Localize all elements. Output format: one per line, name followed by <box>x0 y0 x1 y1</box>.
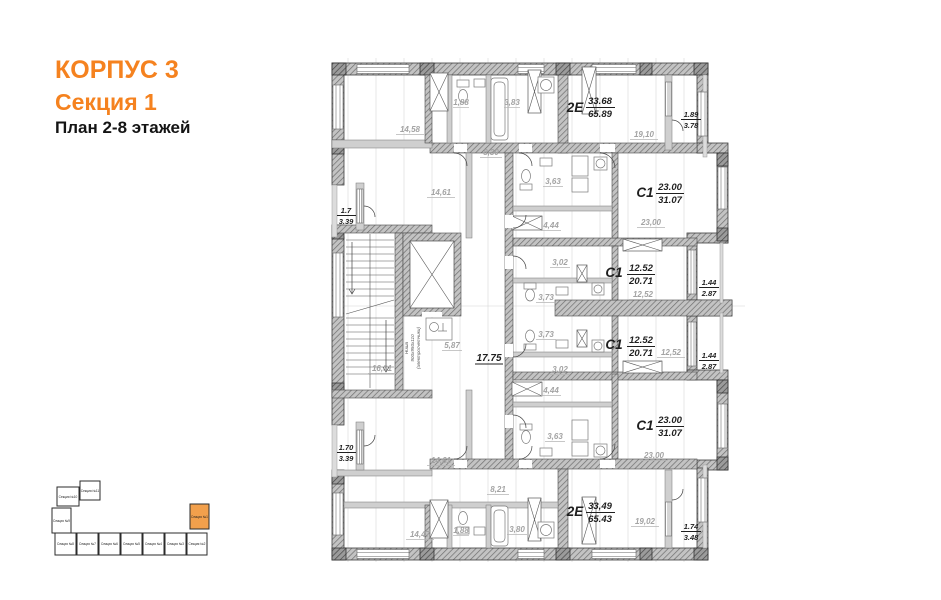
area-top-bath: 3,83 <box>504 98 520 107</box>
balcony-label-right-mid-upper: 1.442.87 <box>699 278 719 298</box>
window <box>518 550 544 559</box>
svg-text:Секция №4: Секция №4 <box>145 542 162 546</box>
niche-line2: 900х950х110 <box>410 334 415 362</box>
balcony-label-left-upper: 1.73.39 <box>337 206 356 226</box>
svg-text:2Е: 2Е <box>566 504 585 519</box>
sink-icon <box>540 158 552 166</box>
window <box>698 92 707 136</box>
svg-text:31.07: 31.07 <box>658 195 682 206</box>
washer-icon <box>594 157 607 170</box>
svg-text:Секция №2: Секция №2 <box>189 542 206 546</box>
area-mid-hall-upper: 3,02 <box>552 258 568 267</box>
window <box>698 478 707 522</box>
window <box>333 253 343 317</box>
window <box>357 550 409 559</box>
niche-line3: (электросчетчики) <box>416 327 421 369</box>
sink-icon <box>540 448 552 456</box>
svg-text:33,49: 33,49 <box>588 501 612 512</box>
area-c1-bottom-room: 23,00 <box>643 451 665 460</box>
svg-text:Секция №1: Секция №1 <box>191 515 208 519</box>
svg-text:2Е: 2Е <box>566 100 585 115</box>
bathtub-icon <box>491 78 508 140</box>
building-title: КОРПУС 3 <box>55 56 179 84</box>
svg-text:Секция №6: Секция №6 <box>101 542 118 546</box>
window <box>718 167 727 209</box>
svg-text:2.87: 2.87 <box>701 362 717 371</box>
svg-text:1.44: 1.44 <box>702 278 717 287</box>
svg-text:20.71: 20.71 <box>628 276 653 287</box>
svg-text:3.39: 3.39 <box>339 217 354 226</box>
area-top-left-room: 14,58 <box>400 125 421 134</box>
svg-text:Секция №8: Секция №8 <box>57 542 74 546</box>
shaft-x <box>623 239 662 251</box>
bathtub-icon <box>491 506 508 546</box>
washer-icon <box>594 444 607 457</box>
area-bottom-left-room: 14,47 <box>410 530 431 539</box>
svg-text:20.71: 20.71 <box>628 348 653 359</box>
apartment-label-c1-top: С1 23.00 31.07 <box>636 182 684 206</box>
sink-icon <box>474 527 485 535</box>
area-top-hall: 8,30 <box>483 148 499 157</box>
svg-text:1.7: 1.7 <box>341 206 352 215</box>
shaft-x <box>430 73 448 111</box>
area-mid-bath-lower: 3,73 <box>538 330 554 339</box>
window <box>357 189 363 223</box>
area-c1-top-kitchen: 3,63 <box>545 177 561 186</box>
niche-line1: Ниша <box>404 341 409 354</box>
area-left-room-lower: 14,61 <box>431 456 452 465</box>
apartment-label-c1-bottom: С1 23.00 31.07 <box>636 415 684 439</box>
shaft-x <box>577 330 587 347</box>
washer-icon <box>592 340 604 352</box>
shaft-x <box>623 361 662 373</box>
elevator-car-icon <box>426 318 452 340</box>
area-bottom-right-room: 19,02 <box>635 517 656 526</box>
svg-text:23.00: 23.00 <box>657 415 682 426</box>
window <box>688 250 696 294</box>
svg-text:3.78: 3.78 <box>684 121 699 130</box>
area-corridor: 17.75 <box>476 353 501 364</box>
svg-text:Секция №3: Секция №3 <box>167 542 184 546</box>
balcony-label-left-lower: 1.703.39 <box>337 443 356 463</box>
svg-text:1.89: 1.89 <box>684 110 699 119</box>
header: КОРПУС 3 Секция 1 План 2-8 этажей <box>55 56 190 137</box>
svg-text:Секция №10: Секция №10 <box>59 495 78 499</box>
window <box>333 493 343 535</box>
svg-text:65.89: 65.89 <box>588 109 612 120</box>
window <box>666 502 672 536</box>
floor-plan-canvas: КОРПУС 3 Секция 1 План 2-8 этажей <box>0 0 941 600</box>
svg-text:С1: С1 <box>605 337 622 352</box>
area-top-right-room: 19,10 <box>634 130 655 139</box>
area-bottom-hall: 8,21 <box>490 485 506 494</box>
svg-text:Секция №11: Секция №11 <box>81 489 100 493</box>
sink-icon <box>556 340 568 348</box>
shaft-x <box>512 382 542 396</box>
window <box>666 82 672 116</box>
area-lift-lobby: 5,87 <box>444 341 460 350</box>
svg-text:33.68: 33.68 <box>588 96 612 107</box>
area-bottom-wc: 1,88 <box>453 526 469 535</box>
sink-icon <box>556 287 568 295</box>
shaft-x <box>577 265 587 282</box>
area-top-wc: 1,88 <box>453 98 469 107</box>
kitchen-icon <box>572 156 588 192</box>
washer-icon <box>538 77 554 93</box>
svg-text:Секция №7: Секция №7 <box>79 542 96 546</box>
sink-icon <box>474 79 485 87</box>
niche-note: Ниша 900х950х110 (электросчетчики) <box>404 327 421 369</box>
window <box>592 550 636 559</box>
svg-text:12.52: 12.52 <box>629 263 653 274</box>
area-mid-hall-lower: 3,02 <box>552 365 568 374</box>
shaft-x <box>430 500 448 538</box>
area-mid-bath-upper: 3,73 <box>538 293 554 302</box>
svg-text:Секция №9: Секция №9 <box>53 519 70 523</box>
plan-subtitle: План 2-8 этажей <box>55 118 190 137</box>
area-stair-hall: 16,31 <box>372 364 393 373</box>
area-mid-room-upper: 12,52 <box>633 290 654 299</box>
svg-text:1.70: 1.70 <box>339 443 354 452</box>
section-title: Секция 1 <box>55 89 157 115</box>
toilet-icon <box>520 170 532 191</box>
toilet-icon <box>524 283 536 301</box>
kitchen-icon <box>572 420 588 456</box>
keyplan: Секция №10 Секция №11 Секция №9 Секция №… <box>52 481 209 555</box>
window <box>333 85 343 129</box>
svg-text:Секция №5: Секция №5 <box>123 542 140 546</box>
area-c1-top-room: 23,00 <box>640 218 662 227</box>
svg-text:С1: С1 <box>636 185 653 200</box>
svg-text:31.07: 31.07 <box>658 428 682 439</box>
svg-text:3.39: 3.39 <box>339 454 354 463</box>
area-c1-bottom-kitchen: 3,63 <box>547 432 563 441</box>
washer-icon <box>592 283 604 295</box>
elevator-shaft <box>403 233 461 340</box>
svg-text:65.43: 65.43 <box>588 514 612 525</box>
svg-text:3.48: 3.48 <box>684 533 699 542</box>
window <box>357 430 363 464</box>
washer-icon <box>538 522 554 538</box>
window <box>688 322 696 366</box>
window <box>592 65 636 74</box>
svg-text:2.87: 2.87 <box>701 289 717 298</box>
window <box>718 404 727 448</box>
balcony-label-right-mid-lower: 1.442.87 <box>699 351 719 371</box>
svg-text:С1: С1 <box>636 418 653 433</box>
area-c1-bottom-hall: 4,44 <box>542 386 559 395</box>
svg-text:1.44: 1.44 <box>702 351 717 360</box>
svg-text:12.52: 12.52 <box>629 335 653 346</box>
area-bottom-bath: 3,80 <box>509 525 525 534</box>
svg-text:С1: С1 <box>605 265 622 280</box>
area-c1-top-hall: 4,44 <box>542 221 559 230</box>
svg-text:1.74: 1.74 <box>684 522 699 531</box>
svg-text:23.00: 23.00 <box>657 182 682 193</box>
area-mid-room-lower: 12,52 <box>661 348 682 357</box>
area-left-room-upper: 14,61 <box>431 188 452 197</box>
window <box>357 65 409 74</box>
